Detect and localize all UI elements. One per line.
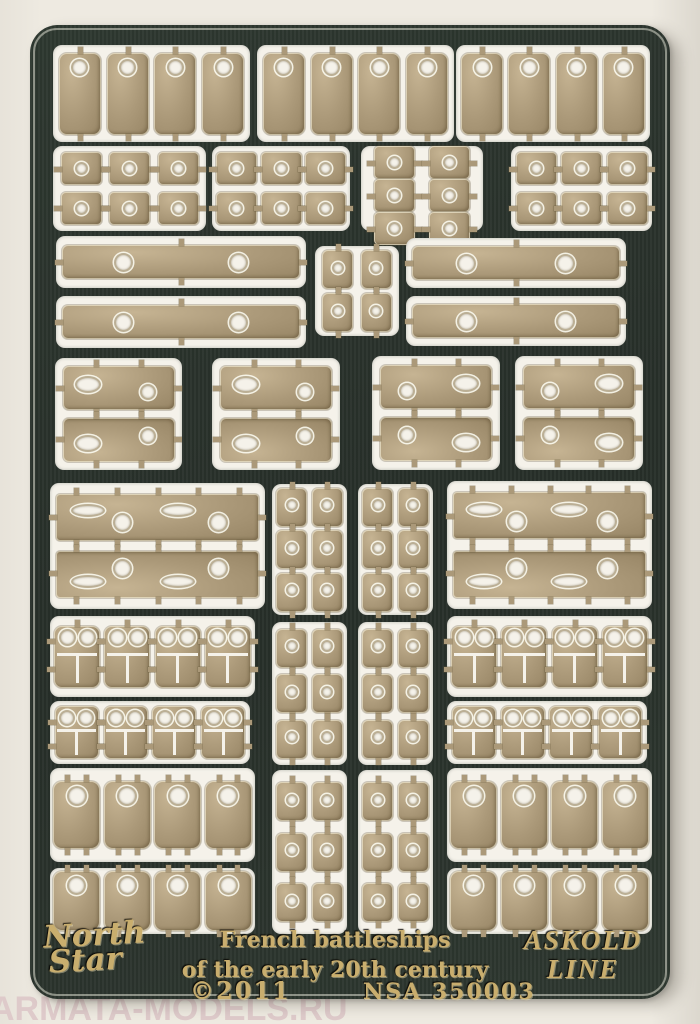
attachment-tab [456, 411, 461, 418]
porthole-hole [475, 710, 491, 726]
porthole-hole [275, 162, 288, 175]
etched-part-tiny-sq [398, 629, 429, 668]
porthole-hole [621, 202, 634, 215]
part-grid [315, 246, 399, 336]
attachment-tab [513, 865, 518, 872]
etched-part-wide-rect-m [523, 365, 635, 409]
attachment-tab [290, 611, 295, 618]
attachment-tab [156, 545, 161, 552]
oval-hole [467, 574, 501, 587]
panel-split-line [573, 655, 576, 684]
fret-window-double-doors-right-2 [447, 701, 647, 764]
porthole-hole [229, 313, 248, 332]
fret-window-hatch-pair-c [372, 356, 500, 470]
attachment-tab [217, 848, 222, 855]
attachment-tab [325, 611, 330, 618]
etched-part-door-med2 [501, 871, 548, 931]
porthole-hole [321, 844, 333, 856]
attachment-tab [258, 572, 266, 577]
etched-part-owl-s [55, 706, 99, 759]
attachment-tab [491, 436, 499, 441]
attachment-tab [582, 865, 587, 872]
porthole-hole [297, 384, 313, 400]
attachment-tab [554, 206, 562, 211]
attachment-tab [198, 206, 206, 211]
fret-window-double-doors-right-1 [447, 616, 652, 697]
attachment-tab [445, 744, 453, 749]
porthole-hole [140, 384, 156, 400]
porthole-hole [119, 59, 136, 76]
attachment-tab [48, 744, 56, 749]
panel-split-line [570, 731, 573, 755]
attachment-tab [422, 227, 430, 232]
attachment-tab [582, 775, 587, 782]
attachment-tab [135, 775, 140, 782]
porthole-hole [407, 640, 419, 652]
attachment-tab [462, 865, 467, 872]
fret-window-rivet-plates-d [358, 622, 433, 765]
porthole-hole [542, 427, 558, 443]
attachment-tab [405, 319, 413, 324]
attachment-tab [376, 524, 381, 531]
panel-split-line [473, 655, 476, 684]
etched-part-tiny-sq [361, 250, 392, 289]
attachment-tab [55, 320, 63, 325]
part-grid [272, 770, 347, 934]
attachment-tab [49, 515, 57, 520]
attachment-tab [179, 338, 184, 345]
porthole-hole [388, 222, 401, 235]
attachment-tab [298, 167, 306, 172]
etched-part-owl [602, 626, 648, 688]
etched-part-tiny-sq [398, 488, 429, 527]
fret-window-large-doors-right [456, 45, 650, 142]
part-grid [361, 146, 483, 231]
porthole-hole [371, 59, 388, 76]
etched-part-small-sq [158, 152, 199, 185]
porthole-hole [109, 629, 126, 646]
part-grid [511, 146, 652, 231]
attachment-tab [425, 134, 430, 141]
attachment-tab [480, 134, 485, 141]
part-grid [257, 45, 454, 142]
attachment-tab [65, 775, 70, 782]
part-grid [406, 296, 626, 346]
attachment-tab [156, 597, 161, 604]
porthole-hole [75, 202, 88, 215]
attachment-tab [290, 524, 295, 531]
attachment-tab [173, 47, 178, 54]
attachment-tab [290, 567, 295, 574]
attachment-tab [548, 486, 553, 493]
attachment-tab [252, 461, 257, 468]
fret-window-long-strip-right-2 [406, 296, 626, 346]
etched-part-tiny-sq [312, 833, 343, 872]
maker-line-1: ASKOLD [508, 926, 658, 955]
attachment-tab [151, 206, 159, 211]
panel-split-line [623, 655, 626, 684]
attachment-tab [480, 47, 485, 54]
oval-hole [552, 574, 586, 587]
attachment-tab [196, 545, 201, 552]
porthole-hole [372, 794, 384, 806]
etched-part-small-sq [607, 152, 648, 185]
etched-part-lens-bar [453, 492, 646, 539]
attachment-tab [367, 161, 375, 166]
etched-part-owl-s [152, 706, 196, 759]
attachment-tab [481, 865, 486, 872]
attachment-tab [563, 848, 568, 855]
etched-part-small-sq [374, 179, 415, 212]
part-grid [447, 481, 652, 609]
fret-window-hinge-plates-center [315, 246, 399, 336]
etched-part-tiny-sq [398, 720, 429, 759]
porthole-hole [399, 383, 415, 399]
porthole-hole [507, 559, 526, 578]
attachment-tab [367, 227, 375, 232]
etched-part-small-sq [607, 192, 648, 225]
attachment-tab [213, 437, 221, 442]
porthole-hole [209, 513, 228, 532]
etched-part-small-sq [109, 192, 150, 225]
porthole-hole [321, 731, 333, 743]
part-grid [372, 356, 500, 470]
attachment-tab [632, 775, 637, 782]
etched-part-door-med2 [154, 871, 201, 931]
etched-part-tiny-sq [362, 488, 393, 527]
attachment-tab [135, 865, 140, 872]
attachment-tab [174, 386, 182, 391]
porthole-hole [370, 262, 382, 274]
etched-part-tiny-sq [398, 674, 429, 713]
porthole-hole [419, 59, 436, 76]
attachment-tab [622, 47, 627, 54]
attachment-tab [250, 667, 258, 672]
attachment-tab [444, 667, 452, 672]
part-grid [447, 616, 652, 697]
etched-part-owl [54, 626, 100, 688]
etched-part-tiny-sq [322, 293, 353, 332]
etched-part-bar2 [62, 305, 300, 339]
porthole-hole [372, 844, 384, 856]
etched-part-tiny-sq [398, 883, 429, 922]
attachment-tab [582, 848, 587, 855]
porthole-hole [140, 428, 156, 444]
attachment-tab [84, 865, 89, 872]
porthole-hole [554, 710, 570, 726]
attachment-tab [54, 167, 62, 172]
attachment-tab [185, 848, 190, 855]
etched-part-door-med [154, 781, 201, 849]
attachment-tab [619, 261, 627, 266]
etched-part-door-tall [603, 53, 645, 135]
etched-part-tiny-sq [362, 674, 393, 713]
porthole-hole [476, 629, 493, 646]
askold-line-logo: ASKOLD LINE [508, 926, 658, 984]
attachment-tab [331, 437, 339, 442]
attachment-tab [198, 667, 206, 672]
attachment-tab [412, 359, 417, 366]
attachment-tab [125, 620, 130, 627]
attachment-tab [325, 776, 330, 783]
porthole-hole [407, 895, 419, 907]
porthole-hole [172, 162, 185, 175]
attachment-tab [325, 524, 330, 531]
attachment-tab [444, 639, 452, 644]
etched-part-door-tall [311, 53, 353, 135]
etched-part-door-tall [461, 53, 503, 135]
panel-split-line [126, 655, 129, 684]
panel-split-line [76, 655, 79, 684]
attachment-tab [456, 460, 461, 467]
attachment-tab [532, 848, 537, 855]
attachment-tab [412, 411, 417, 418]
attachment-tab [176, 620, 181, 627]
etched-part-door-med2 [551, 871, 598, 931]
part-grid [53, 146, 206, 231]
attachment-tab [563, 865, 568, 872]
etched-part-tiny-sq [276, 833, 307, 872]
attachment-tab [411, 567, 416, 574]
attachment-tab [290, 877, 295, 884]
part-grid [53, 45, 250, 142]
attachment-tab [116, 848, 121, 855]
attachment-tab [494, 744, 502, 749]
porthole-hole [206, 710, 222, 726]
attachment-tab [166, 865, 171, 872]
etched-part-tiny-sq [276, 573, 307, 612]
attachment-tab [74, 545, 79, 552]
etched-part-tiny-sq [362, 573, 393, 612]
attachment-tab [600, 167, 608, 172]
panel-split-line [472, 731, 475, 755]
attachment-tab [336, 331, 341, 338]
etched-part-tiny-sq [398, 833, 429, 872]
porthole-hole [575, 162, 588, 175]
porthole-hole [297, 428, 313, 444]
porthole-hole [321, 794, 333, 806]
attachment-tab [446, 571, 454, 576]
attachment-tab [377, 134, 382, 141]
etched-part-door-tall [263, 53, 305, 135]
attachment-tab [258, 515, 266, 520]
attachment-tab [509, 545, 514, 552]
attachment-tab [647, 667, 655, 672]
attachment-tab [634, 436, 642, 441]
etched-part-tiny-sq [361, 293, 392, 332]
fret-window-rivet-plates-a [272, 484, 347, 615]
etched-part-small-sq [561, 152, 602, 185]
porthole-hole [323, 59, 340, 76]
porthole-hole [372, 640, 384, 652]
porthole-hole [372, 895, 384, 907]
etched-part-tiny-sq [276, 488, 307, 527]
porthole-hole [321, 499, 333, 511]
porthole-hole [622, 710, 638, 726]
attachment-tab [290, 623, 295, 630]
attachment-tab [151, 167, 159, 172]
attachment-tab [97, 639, 105, 644]
oval-hole [75, 435, 101, 452]
attachment-tab [336, 244, 341, 251]
etched-part-tiny-sq [276, 883, 307, 922]
attachment-tab [641, 744, 649, 749]
attachment-tab [542, 720, 550, 725]
attachment-tab [376, 714, 381, 721]
attachment-tab [411, 668, 416, 675]
attachment-tab [78, 134, 83, 141]
porthole-hole [372, 499, 384, 511]
attachment-tab [614, 865, 619, 872]
etched-part-owl [552, 626, 598, 688]
part-grid [456, 45, 650, 142]
etched-part-door-med2 [205, 871, 252, 931]
attachment-tab [235, 848, 240, 855]
fret-window-davit-strips-left [50, 483, 265, 609]
attachment-tab [554, 167, 562, 172]
attachment-tab [244, 744, 252, 749]
attachment-tab [411, 827, 416, 834]
porthole-hole [209, 560, 228, 579]
attachment-tab [469, 161, 477, 166]
porthole-hole [75, 162, 88, 175]
porthole-hole [407, 584, 419, 596]
porthole-hole [506, 629, 523, 646]
attachment-tab [376, 776, 381, 783]
porthole-hole [565, 876, 584, 895]
attachment-tab [296, 412, 301, 419]
porthole-hole [113, 560, 132, 579]
porthole-hole [474, 59, 491, 76]
attachment-tab [296, 461, 301, 468]
etched-part-small-sq [374, 146, 415, 179]
attachment-tab [148, 639, 156, 644]
etched-part-door-tall [358, 53, 400, 135]
attachment-tab [296, 360, 301, 367]
porthole-hole [372, 584, 384, 596]
etched-part-owl-s [549, 706, 593, 759]
etched-part-tiny-sq [398, 782, 429, 821]
attachment-tab [462, 775, 467, 782]
attachment-tab [198, 167, 206, 172]
porthole-hole [407, 844, 419, 856]
attachment-tab [625, 597, 630, 604]
attachment-tab [250, 639, 258, 644]
porthole-hole [332, 262, 344, 274]
porthole-hole [407, 542, 419, 554]
porthole-hole [114, 313, 133, 332]
attachment-tab [548, 597, 553, 604]
porthole-hole [388, 189, 401, 202]
porthole-hole [179, 629, 196, 646]
etched-part-wide-rect-m [523, 417, 635, 461]
attachment-tab [325, 623, 330, 630]
porthole-hole [286, 542, 298, 554]
fret-window-rivet-plates-c [272, 622, 347, 765]
attachment-tab [555, 411, 560, 418]
etched-part-small-sq [216, 192, 257, 225]
porthole-hole [127, 710, 143, 726]
attachment-tab [179, 239, 184, 246]
etched-part-tiny-sq [276, 720, 307, 759]
attachment-tab [376, 611, 381, 618]
attachment-tab [411, 611, 416, 618]
oval-hole [467, 503, 501, 516]
copyright-text: ©2011 [190, 976, 291, 1005]
attachment-tab [336, 287, 341, 294]
etched-part-door-med [205, 781, 252, 849]
attachment-tab [456, 359, 461, 366]
porthole-hole [321, 686, 333, 698]
attachment-tab [376, 482, 381, 489]
etched-part-tiny-sq [312, 573, 343, 612]
porthole-hole [286, 895, 298, 907]
attachment-tab [632, 865, 637, 872]
porthole-hole [157, 710, 173, 726]
attachment-tab [376, 623, 381, 630]
porthole-hole [118, 876, 137, 895]
porthole-hole [168, 786, 188, 806]
attachment-tab [244, 720, 252, 725]
attachment-tab [102, 167, 110, 172]
scan-background: ARMATA-MODELS.RU North Star French battl… [0, 0, 700, 1024]
etched-part-door-tall [202, 53, 244, 135]
porthole-hole [117, 786, 137, 806]
attachment-tab [290, 668, 295, 675]
porthole-hole [123, 162, 136, 175]
attachment-tab [94, 461, 99, 468]
etched-part-door-med [104, 781, 151, 849]
porthole-hole [388, 156, 401, 169]
etched-part-small-sq [216, 152, 257, 185]
attachment-tab [514, 298, 519, 305]
porthole-hole [321, 640, 333, 652]
attachment-tab [115, 488, 120, 495]
part-grid [406, 238, 626, 288]
etched-part-small-sq [561, 192, 602, 225]
porthole-hole [443, 222, 456, 235]
porthole-hole [615, 786, 635, 806]
attachment-tab [235, 865, 240, 872]
attachment-tab [299, 320, 307, 325]
attachment-tab [545, 667, 553, 672]
etched-part-tiny-sq [322, 250, 353, 289]
porthole-hole [407, 499, 419, 511]
attachment-tab [235, 775, 240, 782]
etched-part-small-sq [516, 152, 557, 185]
oval-hole [161, 504, 195, 517]
porthole-hole [159, 629, 176, 646]
part-grid [50, 701, 250, 764]
attachment-tab [65, 848, 70, 855]
oval-hole [161, 575, 195, 588]
etched-part-tiny-sq [312, 782, 343, 821]
etched-part-tiny-sq [276, 530, 307, 569]
etched-part-tiny-sq [362, 782, 393, 821]
attachment-tab [470, 545, 475, 552]
porthole-hole [556, 312, 575, 331]
attachment-tab [196, 488, 201, 495]
attachment-tab [373, 385, 381, 390]
etched-part-small-sq [158, 192, 199, 225]
etched-part-small-sq [61, 152, 102, 185]
etched-part-door-tall [406, 53, 448, 135]
etched-part-door-tall [508, 53, 550, 135]
attachment-tab [647, 167, 655, 172]
porthole-hole [407, 731, 419, 743]
part-grid [55, 358, 182, 470]
etched-part-bar2 [412, 304, 620, 338]
